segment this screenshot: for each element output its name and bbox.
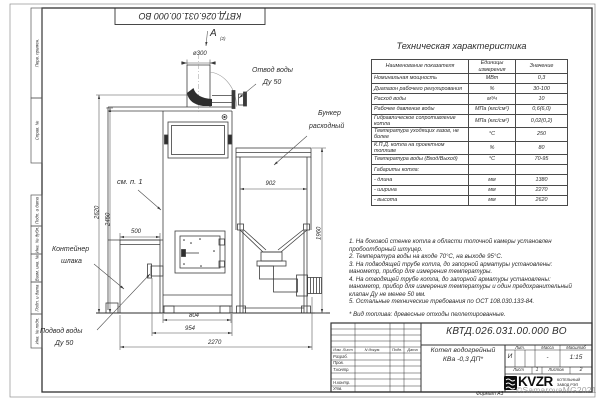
table-row: Расход водым³/ч10 — [372, 94, 568, 104]
title-block-number: КВТД.026.031.00.000 ВО — [421, 327, 592, 337]
callout-see-note-1: см. п. 1 — [117, 178, 143, 186]
callout-water-inlet-2: Ду 50 — [55, 340, 73, 347]
table-row: - длинамм1380 — [372, 175, 568, 185]
mass-header: Масса — [535, 346, 560, 350]
vertical-dim-labels: 2620 2450 1960 — [95, 205, 323, 240]
col-podp: Подп. — [390, 348, 404, 352]
slag-container — [120, 240, 160, 313]
callout-water-outlet-2: Ду 50 — [263, 79, 281, 86]
format-note: Формат А3 — [476, 392, 503, 397]
table-row: - высотамм2620 — [372, 195, 568, 205]
margin-stamp-labels: Перв. примен. Справ. № Подп. и дата Инв.… — [35, 39, 40, 345]
dimension-lines — [96, 31, 326, 350]
spec-col-name: Наименование показателя — [372, 60, 469, 74]
mass-value: - — [535, 355, 560, 361]
role-prov: Пров. — [333, 361, 344, 365]
note-line: манометр, прибор для измерения температу… — [349, 268, 589, 276]
col-n-dokum: N докум. — [355, 348, 390, 352]
table-row: Диапазон рабочего регулирования%30-100 — [372, 84, 568, 94]
callout-slag-container-2: шлака — [61, 258, 82, 265]
top-stamp-number: КВТД.026.031.00.000 ВО — [139, 11, 242, 21]
callout-water-inlet-1: Подвод воды — [40, 328, 82, 335]
spec-table: Наименование показателя Единицы измерени… — [371, 59, 568, 206]
pellet-bunker — [236, 148, 322, 313]
logo-subtext-1: КОТЕЛЬНЫЙ — [557, 379, 580, 383]
spec-col-value: Значение — [516, 60, 568, 74]
copyright-watermark: ©SamarovaMG2021 — [516, 385, 597, 395]
table-row: - ширинамм2270 — [372, 185, 568, 195]
spec-col-units: Единицы измерения — [469, 60, 516, 74]
role-tkontr: Т.контр. — [333, 368, 350, 372]
callout-bunker-2: расходный — [309, 123, 344, 130]
product-name-line2: КВа -0,3 ДП* — [421, 357, 505, 364]
sheet-header: Лист — [505, 368, 532, 372]
lit-header: Лит. — [505, 346, 535, 350]
callout-bunker-1: Бункер — [318, 110, 341, 117]
spec-header-row: Наименование показателя Единицы измерени… — [372, 60, 568, 74]
stamp-inv-dubl: Инв. № дубл. — [35, 227, 40, 253]
note-line: * Вид топлива: древесные отходы пеллетир… — [349, 311, 589, 319]
table-row: Номинальная мощностьМВт0,3 — [372, 74, 568, 84]
callout-water-outlet-1: Отвод воды — [252, 67, 293, 74]
dim-width-954: 954 — [185, 326, 195, 332]
dim-height-1960: 1960 — [317, 226, 323, 240]
table-row: Температура воды (Вход/Выход)°С70-95 — [372, 154, 568, 164]
table-row: Габариты котла: — [372, 165, 568, 175]
col-izm-list: Изм. Лист — [331, 348, 355, 352]
callout-slag-container-1: Контейнер — [52, 246, 89, 253]
col-data: Дата — [404, 348, 421, 352]
dim-width-804: 804 — [189, 313, 199, 319]
sheets-header: Листов — [542, 368, 570, 372]
note-line: пробоотборный штуцер. — [349, 246, 589, 254]
note-line: 4. На отводящей трубе котла, до запорной… — [349, 276, 589, 284]
table-row: Гидравлическое сопротивление котлаМПа (к… — [372, 114, 568, 127]
table-row: К.П.Д. котла на проектном топливе%80 — [372, 141, 568, 154]
view-a-label: A — [210, 29, 217, 39]
table-row: Температура уходящих газов, не более°С25… — [372, 128, 568, 141]
note-line: 1. На боковой стенке котла в области топ… — [349, 238, 589, 246]
role-utv: Утв. — [333, 387, 342, 391]
note-line: 2. Температура воды на входе 70°С, на вы… — [349, 253, 589, 261]
role-razrab: Разраб. — [333, 355, 348, 359]
scale-header: Масштаб — [560, 346, 592, 350]
callout-leaders — [94, 84, 307, 330]
view-a-sheet-ref: (2) — [220, 37, 226, 42]
stamp-podp-data-2: Подп. и дата — [35, 284, 40, 312]
table-row: Рабочее давление водыМПа (кгс/см²)0,6(6,… — [372, 104, 568, 114]
product-name-line1: Котел водогрейный — [421, 348, 505, 355]
drawing-sheet: Перв. примен. Справ. № Подп. и дата Инв.… — [0, 0, 600, 400]
flue-and-outlet — [187, 54, 247, 112]
dim-height-2450: 2450 — [106, 212, 112, 227]
stamp-perv-primen: Перв. примен. — [35, 39, 40, 68]
note-line: клапан Ду не менее 50 мм. — [349, 291, 589, 299]
sheet-number: 1 — [532, 368, 542, 373]
sheets-total: 2 — [570, 368, 592, 373]
stamp-podp-data-1: Подп. и дата — [35, 196, 40, 224]
dim-width-902: 902 — [266, 181, 276, 187]
spec-table-title: Техническая характеристика — [371, 42, 552, 51]
lit-value: И — [505, 354, 515, 361]
boiler-body — [106, 107, 232, 313]
dim-width-2270: 2270 — [208, 340, 221, 346]
role-nkontr: Н.контр. — [333, 381, 350, 385]
note-line: манометр, прибор для измерения температу… — [349, 283, 589, 291]
note-line: 3. На подводящей трубе котла, до запорно… — [349, 261, 589, 269]
stamp-vzam-inv: Взам. инв. № — [35, 254, 40, 281]
technical-notes: 1. На боковой стенке котла в области топ… — [349, 238, 589, 318]
stamp-inv-podl: Инв. № подл. — [35, 318, 40, 345]
dim-height-2620: 2620 — [95, 205, 101, 220]
stamp-sprav-no: Справ. № — [35, 120, 40, 140]
dim-flue-d300: ø300 — [193, 51, 207, 57]
scale-value: 1:15 — [560, 355, 592, 362]
dim-width-500: 500 — [131, 229, 141, 235]
note-line: 5. Остальные технические требования по О… — [349, 298, 589, 306]
